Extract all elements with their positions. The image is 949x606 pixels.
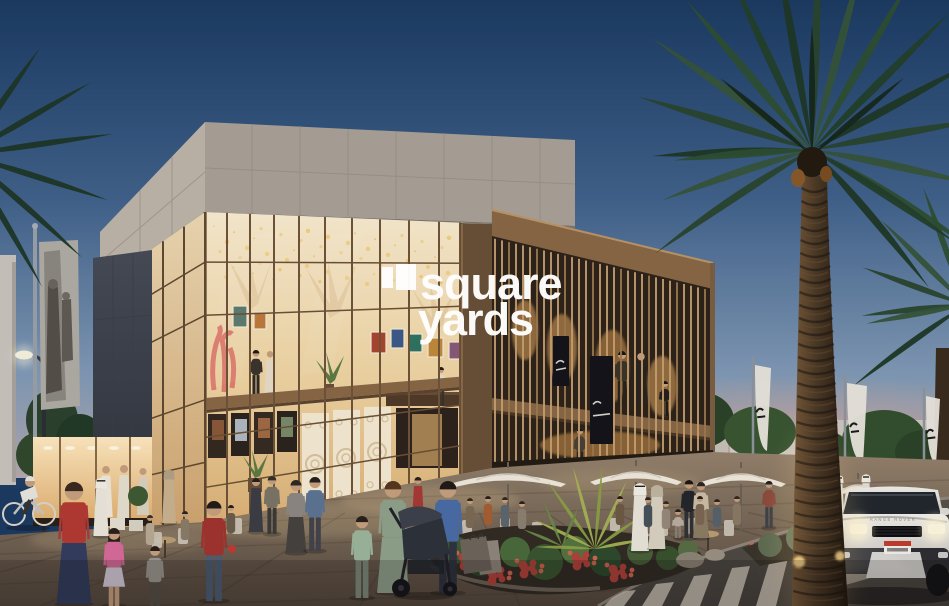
watermark-text-line2: yards [418,294,533,345]
scene-render: RANGE ROVER sq [0,0,949,606]
watermark-icon-large [396,264,416,290]
watermark-icon-small [382,267,393,288]
render-frame: RANGE ROVER sq [0,0,949,606]
